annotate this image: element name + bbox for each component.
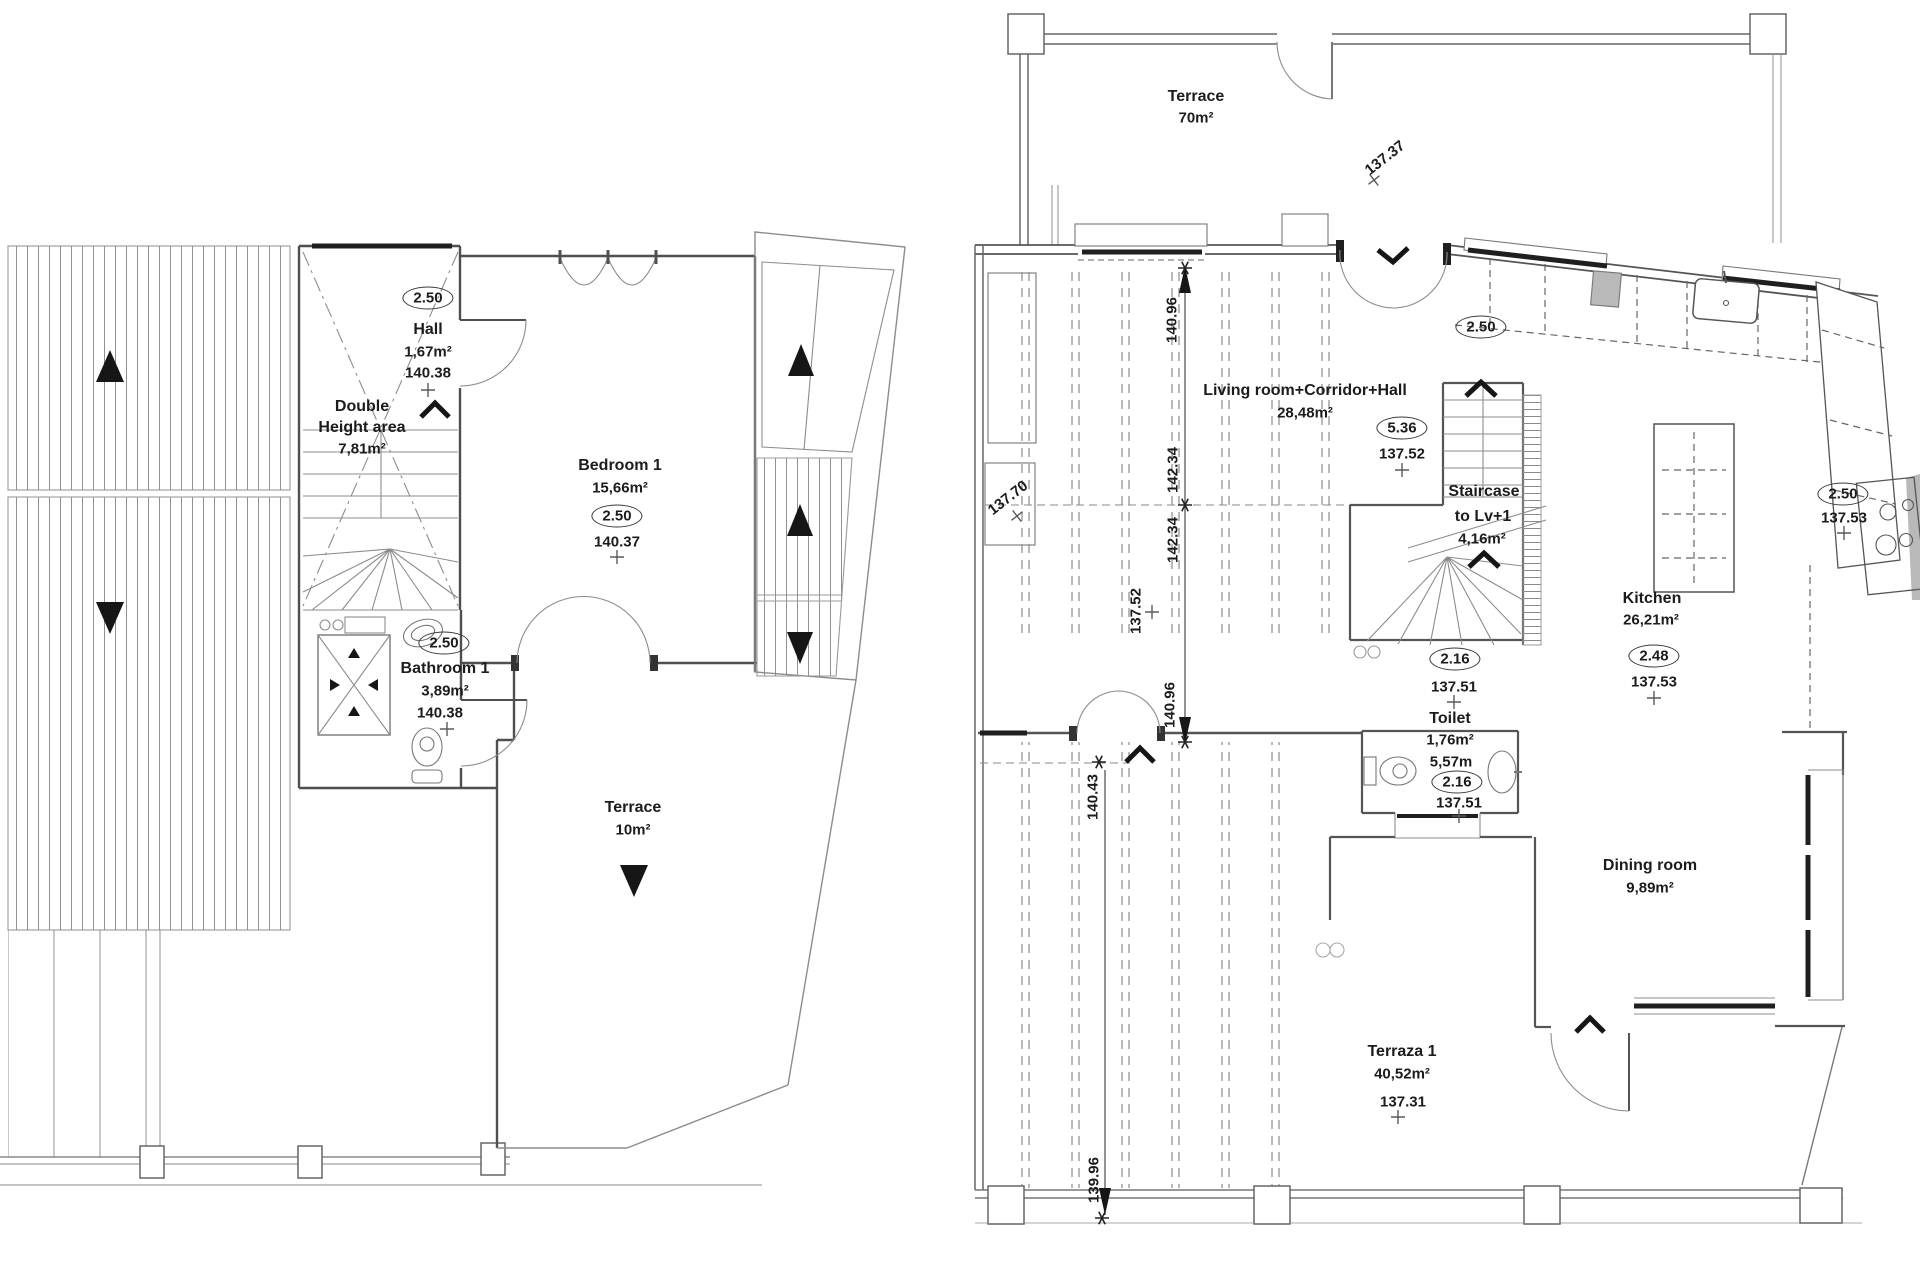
kitchen-appliance (1591, 271, 1622, 307)
left-plan-bay (755, 232, 905, 1085)
toilet-area-label: 1,76m² (1426, 733, 1474, 748)
kitchen-area-label: 26,21m² (1623, 613, 1679, 628)
double-height-label-2: Height area (318, 420, 405, 436)
left-plan-lower-terrace (0, 930, 762, 1185)
entry-elevation-badge: 2.50 (1455, 316, 1506, 339)
bedroom1-level-label: 140.37 (594, 535, 640, 550)
entry-chevron-icon (1378, 248, 1408, 262)
bathroom1-label: Bathroom 1 (401, 661, 490, 677)
bathroom1-level-label: 140.38 (417, 706, 463, 721)
right-plan (421, 14, 1920, 1224)
dim-139-96: 139.96 (1087, 1157, 1102, 1203)
direction-up-icon (788, 344, 814, 376)
dining-room-label: Dining room (1603, 858, 1697, 874)
dining-room-area-label: 9,89m² (1626, 881, 1674, 896)
hall-elevation-badge: 2.50 (402, 287, 453, 310)
right-plan-top-terrace (1008, 14, 1786, 245)
stair-up-chevron-icon (1469, 553, 1499, 567)
toilet-room (1330, 731, 1535, 1027)
left-plan-walls (299, 246, 757, 1148)
living-room-level-label: 137.52 (1379, 447, 1425, 462)
toilet-height-badge: 2.16 (1431, 771, 1482, 794)
toilet-fixture (1364, 757, 1416, 785)
dim-142-34-b: 142.34 (1166, 517, 1181, 563)
top-terrace-label: Terrace (1168, 89, 1225, 105)
living-room-area-label: 28,48m² (1277, 406, 1333, 421)
kitchen-level-label: 137.53 (1631, 675, 1677, 690)
left-terrace-area-label: 10m² (615, 823, 650, 838)
floorplan-sheet: 2.50 Hall 1,67m² 140.38 Double Height ar… (0, 0, 1920, 1280)
stair-up-chevron-icon (421, 403, 449, 417)
staircase-area-label: 4,16m² (1458, 532, 1506, 547)
bathroom1-area-label: 3,89m² (421, 684, 469, 699)
staircase-label-2: to Lv+1 (1455, 509, 1511, 525)
door-chevron-icon (1576, 1018, 1604, 1032)
dim-140-43: 140.43 (1086, 774, 1101, 820)
toilet-label: Toilet (1429, 711, 1470, 727)
dim-140-96-top: 140.96 (1165, 297, 1180, 343)
bedroom1-label: Bedroom 1 (578, 458, 662, 474)
terraza1-level-label: 137.31 (1380, 1095, 1426, 1110)
staircase-level-label: 137.51 (1431, 680, 1477, 695)
top-terrace-area-label: 70m² (1178, 111, 1213, 126)
kitchen-right-level-label: 137.53 (1821, 511, 1867, 526)
kitchen-label: Kitchen (1623, 591, 1682, 607)
left-plan-terrace (497, 865, 788, 1148)
toilet-perimeter-label: 5,57m (1430, 755, 1473, 770)
corridor-spot-level: 137.52 (1129, 588, 1144, 634)
left-plan-roof-hatch (8, 246, 290, 930)
floorplan-linework (0, 0, 1920, 1280)
hall-area-label: 1,67m² (404, 345, 452, 360)
double-height-area-label: 7,81m² (338, 442, 386, 457)
bedroom1-elevation-badge: 2.50 (591, 505, 642, 528)
shower (318, 617, 390, 735)
bathroom1-elevation-badge: 2.50 (418, 632, 469, 655)
double-height-label-1: Double (335, 399, 389, 415)
bedroom1-area-label: 15,66m² (592, 481, 648, 496)
kitchen-height-badge: 2.48 (1628, 645, 1679, 668)
living-room-height-badge: 5.36 (1376, 417, 1427, 440)
kitchen-right-elevation-badge: 2.50 (1817, 483, 1868, 506)
staircase-height-badge: 2.16 (1429, 648, 1480, 671)
hall-level-label: 140.38 (405, 366, 451, 381)
direction-down-icon (620, 865, 648, 897)
left-terrace-label: Terrace (605, 800, 662, 816)
staircase-label-1: Staircase (1448, 484, 1519, 500)
terraza1-area-label: 40,52m² (1374, 1067, 1430, 1082)
hall-label: Hall (413, 322, 442, 338)
dim-142-34-a: 142.34 (1166, 447, 1181, 493)
living-room-label: Living room+Corridor+Hall (1203, 383, 1407, 399)
dim-140-96-low: 140.96 (1163, 682, 1178, 728)
toilet-fixture (412, 728, 442, 783)
toilet-level-label: 137.51 (1436, 796, 1482, 811)
terraza1-label: Terraza 1 (1367, 1044, 1436, 1060)
